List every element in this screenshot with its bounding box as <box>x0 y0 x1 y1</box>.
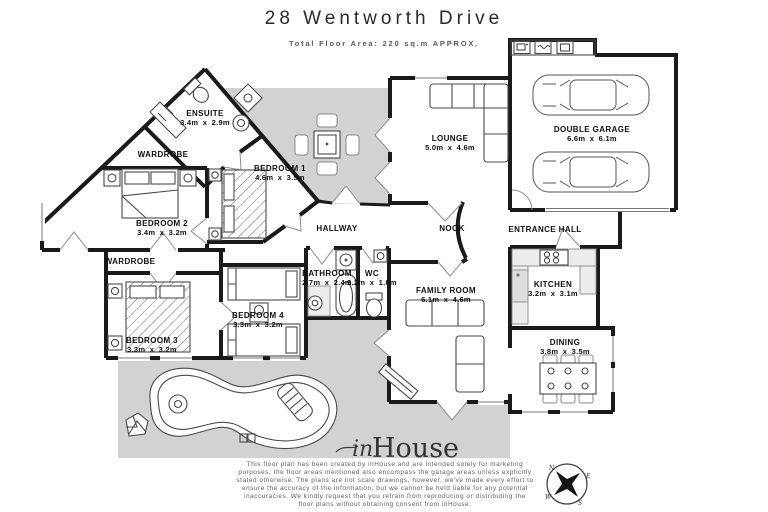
logo-house-text: House <box>372 433 459 464</box>
label-ensuite: ENSUITE <box>186 109 224 118</box>
window <box>610 368 616 392</box>
compass-w: W <box>545 494 552 501</box>
window <box>478 399 504 405</box>
fridge <box>512 270 528 302</box>
dims-family-room: 6.1m x 4.6m <box>421 295 471 304</box>
garage-door <box>546 209 669 212</box>
label-wardrobe-1: WARDROBE <box>138 150 189 159</box>
dims-double-garage: 6.6m x 6.1m <box>567 134 617 143</box>
page-title: 28 Wentworth Drive <box>265 8 504 29</box>
disclaimer-line: floor plans without obtaining consent fr… <box>299 501 472 508</box>
window <box>522 409 548 415</box>
sink-icon <box>514 42 530 54</box>
disclaimer-line: stated otherwise. The plans are not scal… <box>236 477 533 484</box>
disclaimer-line: This floor plan has been created by inHo… <box>247 461 524 468</box>
label-wc: WC <box>365 269 379 278</box>
label-hallway: HALLWAY <box>316 224 357 233</box>
car <box>533 152 649 192</box>
label-entrance-hall: ENTRANCE HALL <box>508 225 581 234</box>
inhouse-logo: in House <box>336 433 459 464</box>
window <box>560 409 588 415</box>
dims-wc: 2.2m x 1.0m <box>347 278 397 287</box>
bed-bedroom2 <box>104 169 196 218</box>
window <box>610 336 616 362</box>
label-bedroom-1: BEDROOM 1 <box>254 164 306 173</box>
dining-set <box>540 355 596 403</box>
label-bedroom-3: BEDROOM 3 <box>126 336 178 345</box>
dims-lounge: 5.0m x 4.6m <box>425 143 475 152</box>
dims-bedroom-4: 3.3m x 3.2m <box>233 320 283 329</box>
compass-icon: N E S W <box>545 464 591 507</box>
dims-bedroom-3: 3.3m x 3.2m <box>127 345 177 354</box>
disclaimer-line: ensure the accuracy of the information, … <box>242 485 528 492</box>
label-bathroom: BATHROOM <box>302 269 352 278</box>
label-bedroom-4: BEDROOM 4 <box>232 311 284 320</box>
dims-bedroom-2: 3.4m x 3.2m <box>137 228 187 237</box>
dims-ensuite: 3.4m x 2.9m <box>180 118 230 127</box>
compass-e: E <box>585 473 591 480</box>
label-kitchen: KITCHEN <box>534 280 572 289</box>
compass-s: S <box>578 500 582 507</box>
window <box>415 75 447 81</box>
dims-bathroom: 2.7m x 2.4m <box>302 278 352 287</box>
logo-in-text: in <box>352 437 373 462</box>
floor-area-subtitle: Total Floor Area: 220 sq.m APPROX. <box>289 39 479 48</box>
disclaimer: This floor plan has been created by inHo… <box>236 461 533 508</box>
dims-kitchen: 3.2m x 3.1m <box>528 289 578 298</box>
label-lounge: LOUNGE <box>432 134 469 143</box>
label-nook: NOOK <box>439 224 465 233</box>
washer-icon <box>557 42 573 54</box>
window <box>39 203 45 241</box>
car <box>533 75 649 115</box>
label-family-room: FAMILY ROOM <box>416 286 476 295</box>
laundry-tub-icon <box>535 42 551 54</box>
utility-appliances <box>511 40 595 55</box>
dims-bedroom-1: 4.6m x 3.5m <box>255 173 305 182</box>
disclaimer-line: purposes, the floor areas mentioned also… <box>238 469 532 476</box>
label-bedroom-2: BEDROOM 2 <box>136 219 188 228</box>
window <box>118 355 150 361</box>
disclaimer-line: inaccuracies. We kindly request that you… <box>244 493 526 500</box>
compass-n: N <box>548 465 555 472</box>
label-double-garage: DOUBLE GARAGE <box>554 125 631 134</box>
dims-dining: 3.8m x 3.5m <box>540 347 590 356</box>
label-wardrobe-2: WARDROBE <box>105 257 156 266</box>
label-dining: DINING <box>550 338 580 347</box>
family-room-furniture <box>379 300 484 399</box>
floor-plan: 28 Wentworth Drive Total Floor Area: 220… <box>0 0 768 512</box>
window <box>160 355 192 361</box>
floor-plan-page: 28 Wentworth Drive Total Floor Area: 220… <box>0 0 768 512</box>
